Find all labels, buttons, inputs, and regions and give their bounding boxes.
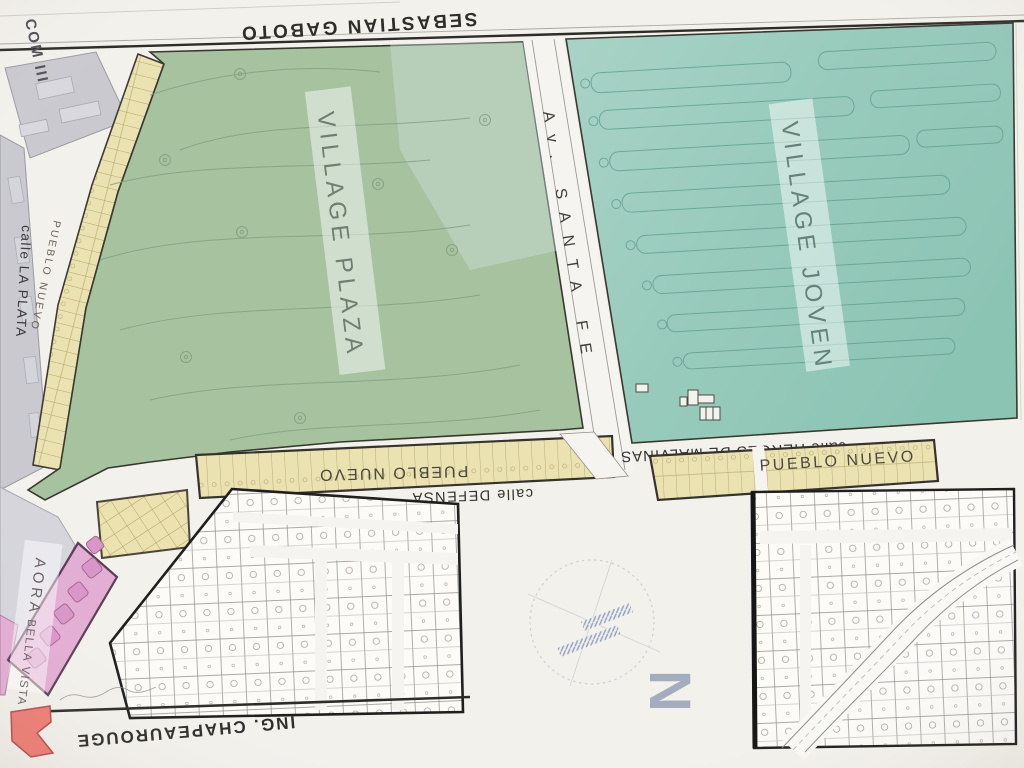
masterplan-map: SEBASTIAN GABOTO COM III calle LA PLATA … — [0, 0, 1024, 768]
map-photo: SEBASTIAN GABOTO COM III calle LA PLATA … — [0, 0, 1024, 768]
photo-vignette — [0, 0, 1024, 768]
